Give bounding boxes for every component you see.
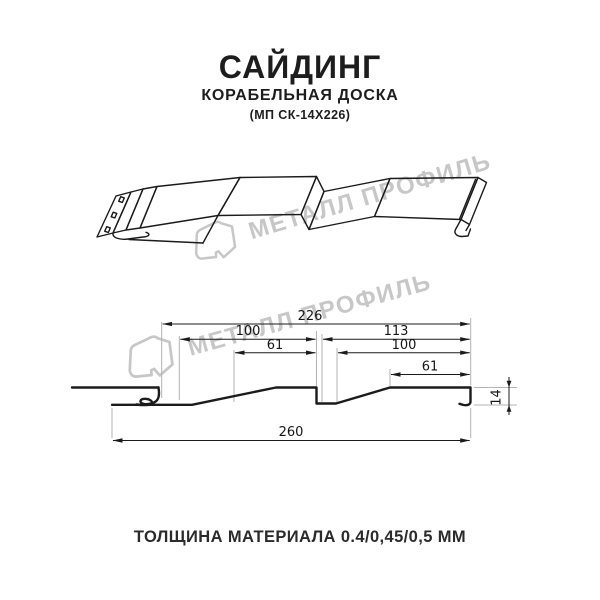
cross-section-drawing: 226 100 113 61 100 61 260 14 [72, 309, 517, 441]
profile-3d-drawing [97, 177, 487, 244]
dim-61R-label: 61 [422, 360, 439, 375]
dimension-lines [113, 324, 511, 441]
dim-14-label: 14 [490, 389, 505, 406]
extension-lines [112, 318, 517, 438]
dim-260-label: 260 [279, 425, 304, 440]
lock-fold-strip [113, 187, 203, 244]
page-root: САЙДИНГ КОРАБЕЛЬНАЯ ДОСКА (МП СК-14Х226)… [0, 0, 600, 600]
panel-profile [112, 388, 471, 406]
dim-100L-label: 100 [236, 324, 261, 339]
dim-226-label: 226 [298, 309, 323, 324]
model-code: (МП СК-14Х226) [0, 108, 600, 122]
profile-outline [72, 388, 471, 406]
lock-curl [137, 388, 160, 406]
dim-100R-label: 100 [392, 338, 417, 353]
dim-61L-label: 61 [267, 338, 284, 353]
panel-surfaces [140, 177, 478, 244]
dim-113-label: 113 [384, 324, 409, 339]
material-thickness-label: ТОЛЩИНА МАТЕРИАЛА 0.4/0,45/0,5 ММ [0, 528, 600, 547]
product-subtitle: КОРАБЕЛЬНАЯ ДОСКА [0, 87, 600, 105]
end-fold [455, 178, 487, 237]
page-title: САЙДИНГ [0, 49, 600, 86]
